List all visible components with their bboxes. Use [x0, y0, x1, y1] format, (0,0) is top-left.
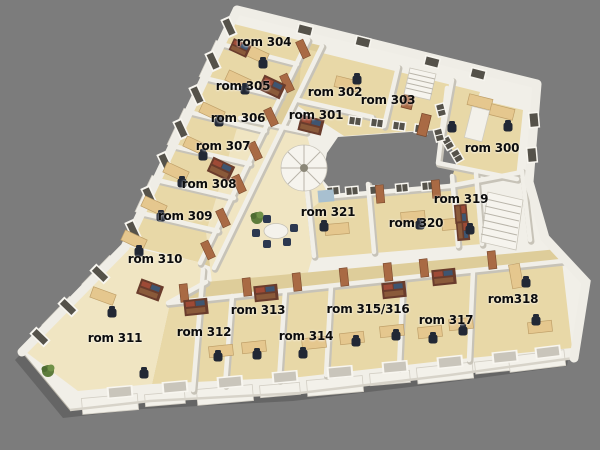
main-staircase [481, 192, 523, 250]
floorplan-3d-render [0, 0, 600, 450]
floorplan-scene: rom 300rom 301rom 302rom 303rom 304rom 3… [0, 0, 600, 450]
hall-staircase [404, 68, 436, 100]
spiral-staircase [281, 145, 327, 191]
